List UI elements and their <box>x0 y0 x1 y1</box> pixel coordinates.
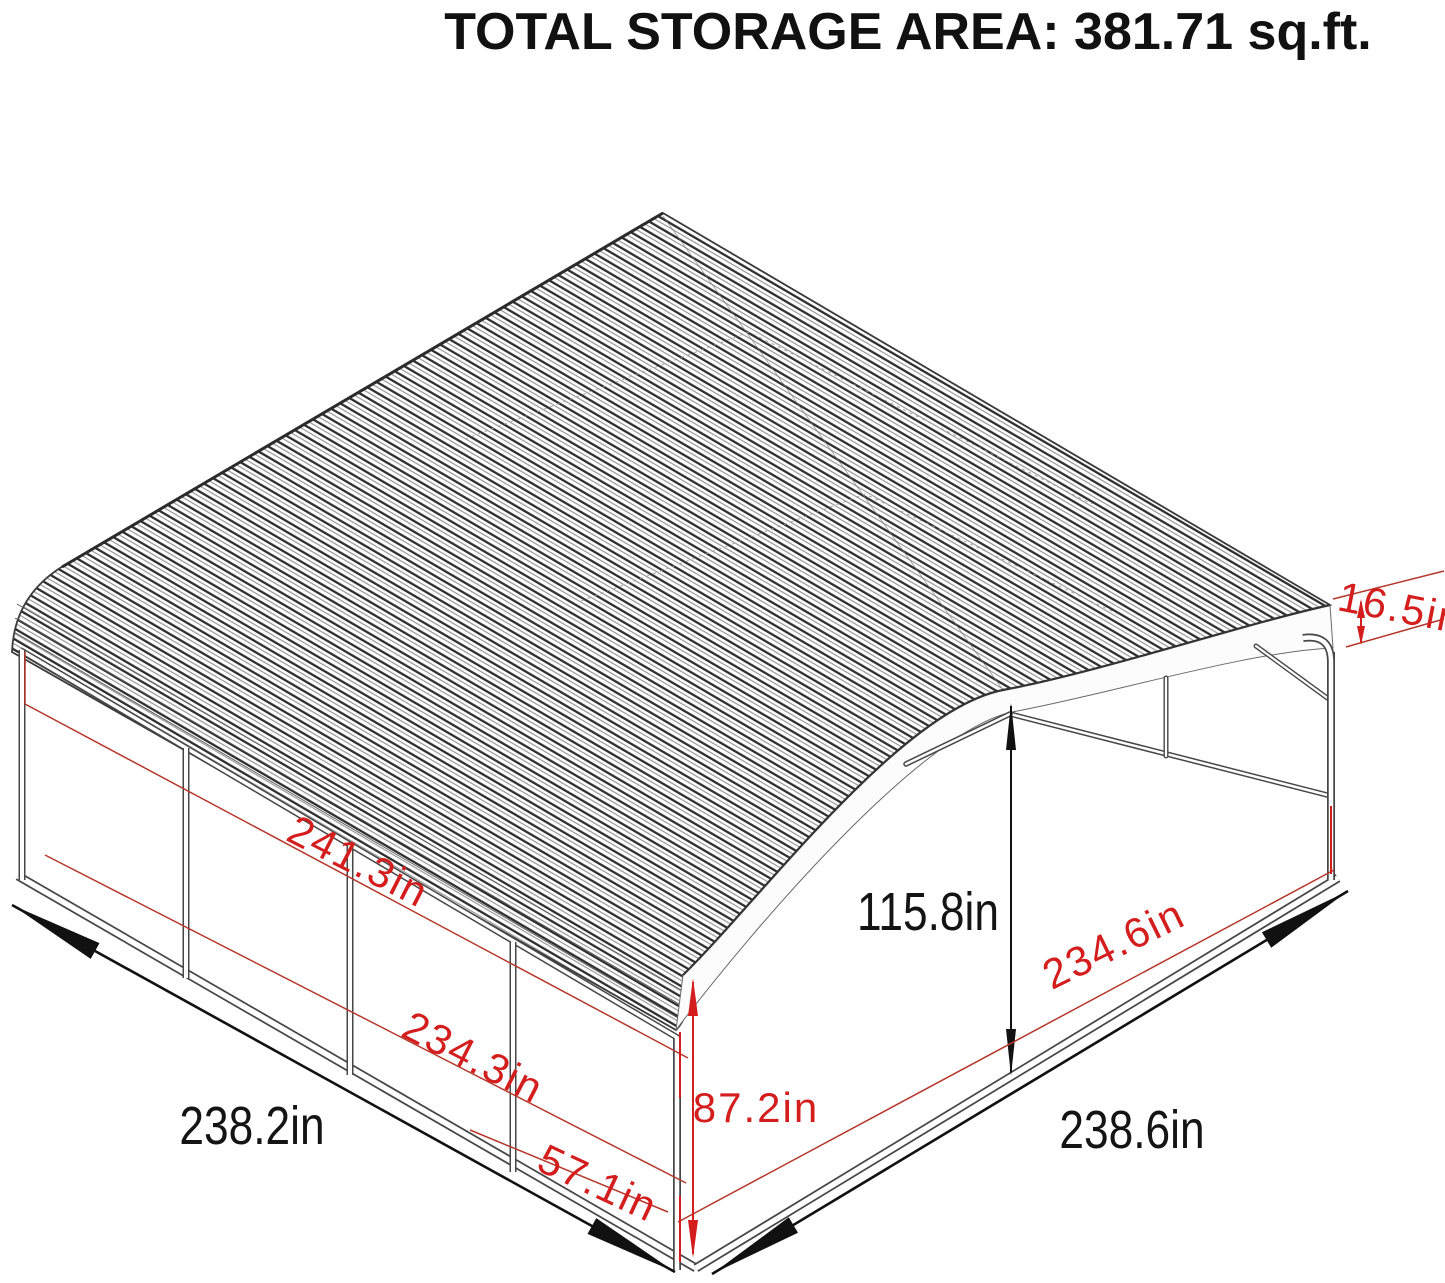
arrowhead-87-2-down <box>688 1220 698 1258</box>
dim-line-234-6 <box>678 870 1334 1222</box>
right-roof-brace-face <box>1256 646 1330 700</box>
interior-beam-right-face <box>1010 714 1331 796</box>
arrowhead-115-8-down <box>1006 1029 1016 1076</box>
carport-dimension-diagram: TOTAL STORAGE AREA: 381.71 sq.ft. <box>0 0 1445 1283</box>
dim-label-115-8: 115.8in <box>857 882 999 942</box>
dim-label-238-6: 238.6in <box>1059 1100 1204 1160</box>
dim-label-238-2: 238.2in <box>179 1096 324 1156</box>
dim-line-238-6 <box>712 891 1348 1274</box>
roof <box>12 213 1330 1030</box>
dim-label-234-3: 234.3in <box>395 1002 552 1113</box>
carport-drawing: 241.3in 234.3in 57.1in 87.2in 234.6in 16… <box>0 0 1445 1283</box>
roof-corrugated-surface <box>12 213 1330 1030</box>
dim-label-16-5: 16.5in <box>1334 573 1445 643</box>
right-base-rail-face <box>696 878 1338 1268</box>
dim-label-87-2: 87.2in <box>693 1084 819 1131</box>
